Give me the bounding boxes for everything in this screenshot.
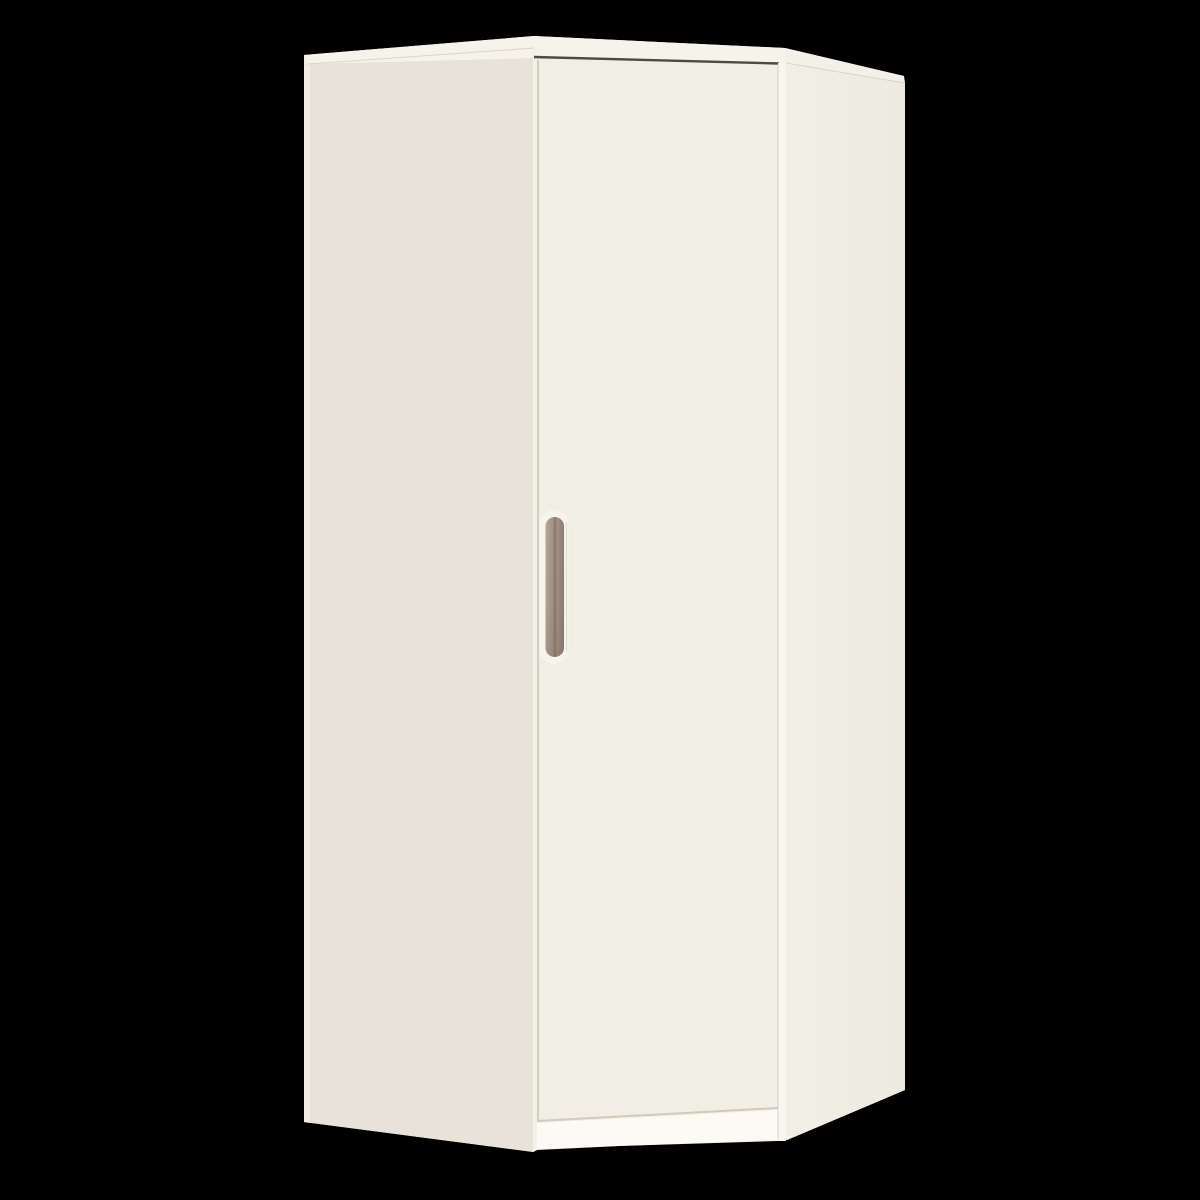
right-panel-front-edge <box>778 62 786 1141</box>
product-image-canvas <box>0 0 1200 1200</box>
door-handle <box>540 510 569 664</box>
right-side-panel <box>786 63 905 1140</box>
corner-wardrobe-render <box>0 0 1200 1200</box>
left-panel-front-edge <box>533 48 537 1152</box>
wardrobe-door <box>537 58 778 1121</box>
left-side-panel <box>304 48 534 1152</box>
left-panel-edge-highlight <box>304 65 310 1124</box>
handle-pill-shading <box>546 517 565 657</box>
